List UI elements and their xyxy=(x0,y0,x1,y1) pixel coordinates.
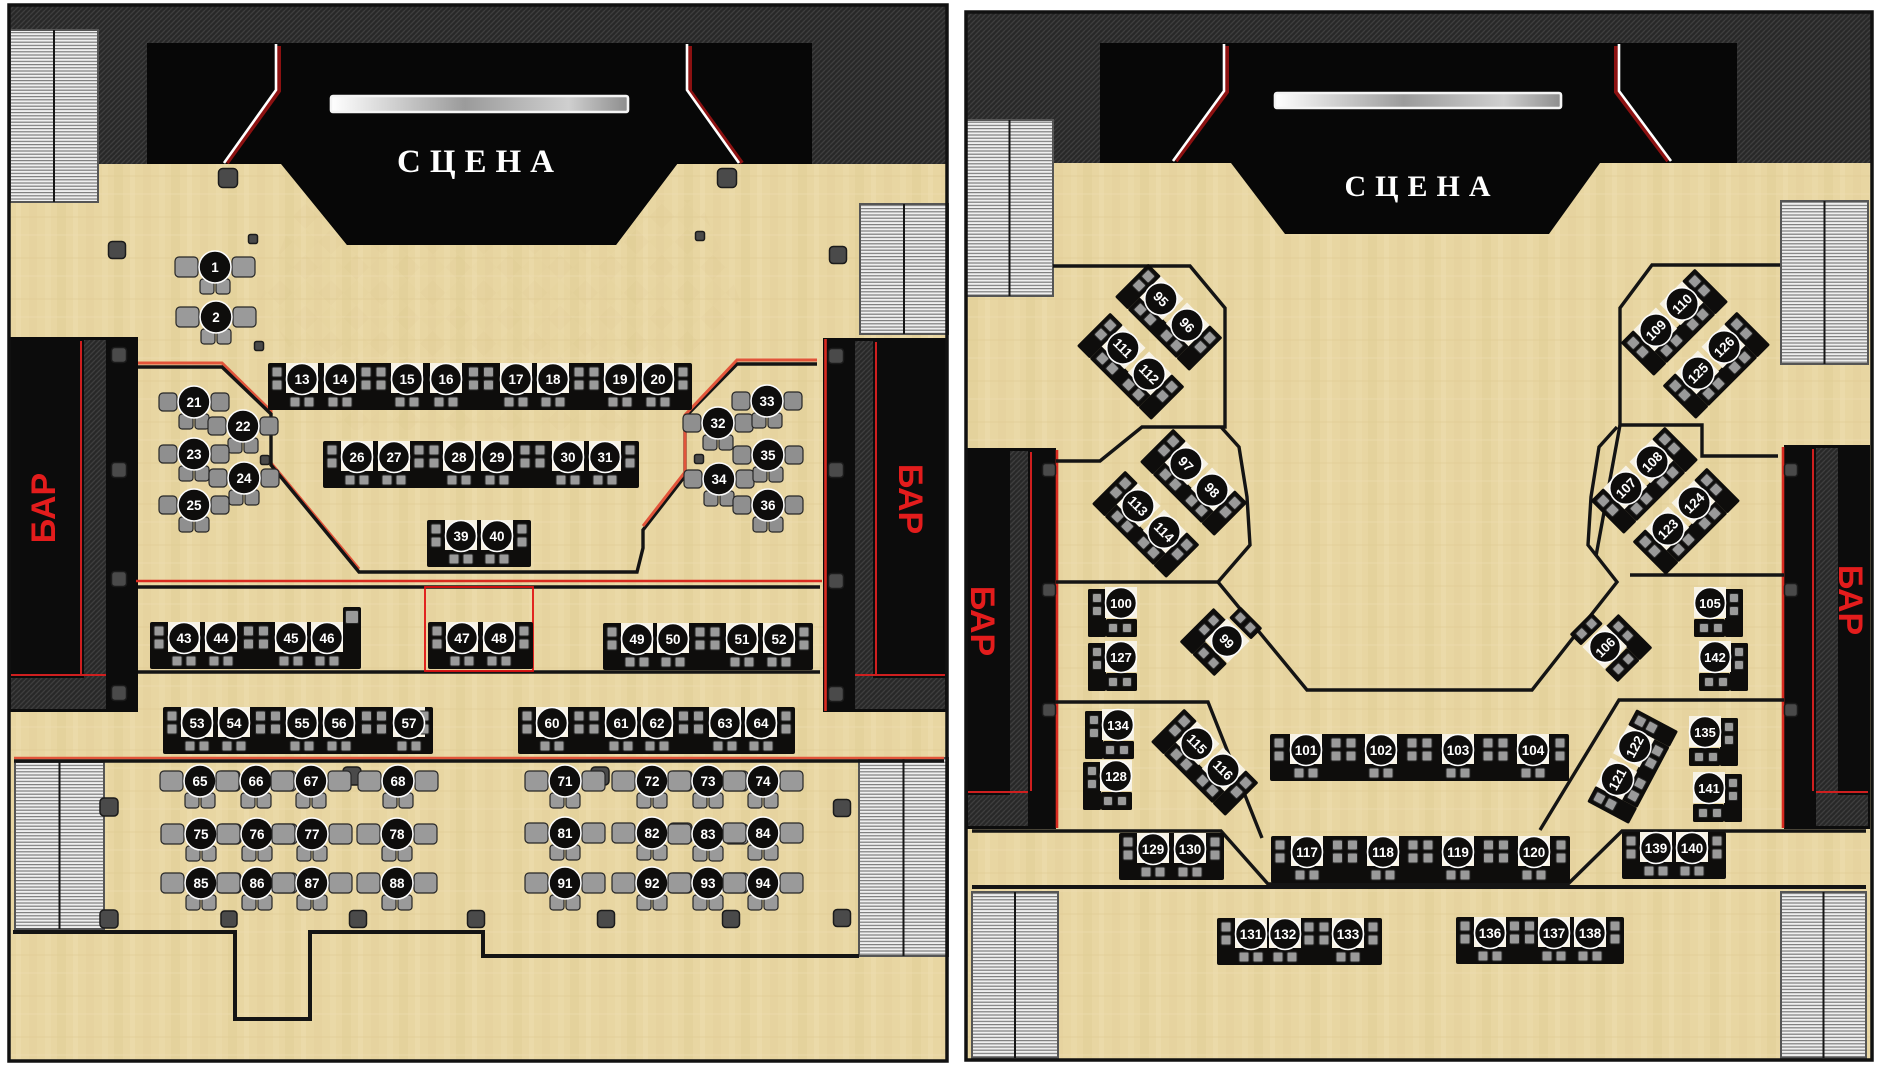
svg-text:36: 36 xyxy=(760,498,776,513)
svg-text:46: 46 xyxy=(319,631,335,646)
svg-text:25: 25 xyxy=(186,498,202,513)
svg-text:50: 50 xyxy=(665,632,680,647)
svg-text:44: 44 xyxy=(213,631,229,646)
svg-text:141: 141 xyxy=(1698,781,1720,796)
svg-text:140: 140 xyxy=(1681,841,1704,856)
svg-text:142: 142 xyxy=(1704,650,1726,665)
svg-text:49: 49 xyxy=(629,632,644,647)
svg-text:34: 34 xyxy=(711,472,727,487)
svg-text:104: 104 xyxy=(1522,743,1545,758)
svg-text:82: 82 xyxy=(644,826,659,841)
svg-text:33: 33 xyxy=(759,394,775,409)
svg-text:68: 68 xyxy=(390,774,406,789)
svg-text:55: 55 xyxy=(294,716,310,731)
svg-text:72: 72 xyxy=(644,774,659,789)
svg-text:1: 1 xyxy=(211,260,219,275)
svg-text:14: 14 xyxy=(332,372,348,387)
svg-text:93: 93 xyxy=(700,876,716,891)
svg-text:117: 117 xyxy=(1296,845,1318,860)
svg-text:63: 63 xyxy=(717,716,733,731)
svg-text:133: 133 xyxy=(1337,927,1360,942)
svg-text:101: 101 xyxy=(1295,743,1318,758)
svg-text:102: 102 xyxy=(1370,743,1393,758)
svg-text:51: 51 xyxy=(734,632,750,647)
svg-text:32: 32 xyxy=(710,416,725,431)
svg-text:30: 30 xyxy=(560,450,575,465)
svg-text:128: 128 xyxy=(1105,769,1127,784)
svg-text:18: 18 xyxy=(545,372,561,387)
svg-text:26: 26 xyxy=(349,450,365,465)
svg-text:92: 92 xyxy=(644,876,659,891)
svg-text:27: 27 xyxy=(386,450,401,465)
svg-text:118: 118 xyxy=(1372,845,1394,860)
svg-text:74: 74 xyxy=(755,774,771,789)
svg-text:139: 139 xyxy=(1645,841,1668,856)
svg-text:52: 52 xyxy=(771,632,786,647)
svg-text:56: 56 xyxy=(331,716,347,731)
svg-text:137: 137 xyxy=(1543,926,1566,941)
svg-text:31: 31 xyxy=(597,450,613,465)
svg-text:120: 120 xyxy=(1523,845,1546,860)
svg-text:19: 19 xyxy=(612,372,627,387)
svg-text:2: 2 xyxy=(212,310,220,325)
svg-text:20: 20 xyxy=(650,372,665,387)
svg-text:15: 15 xyxy=(399,372,415,387)
svg-text:132: 132 xyxy=(1274,927,1297,942)
svg-text:22: 22 xyxy=(235,419,250,434)
svg-text:127: 127 xyxy=(1110,650,1132,665)
svg-text:100: 100 xyxy=(1110,596,1132,611)
svg-text:67: 67 xyxy=(303,774,318,789)
svg-text:47: 47 xyxy=(454,630,470,646)
svg-text:66: 66 xyxy=(248,774,264,789)
svg-text:28: 28 xyxy=(451,450,467,465)
svg-text:40: 40 xyxy=(489,529,504,544)
svg-text:БАР: БАР xyxy=(25,473,63,543)
svg-text:78: 78 xyxy=(389,827,405,842)
svg-text:39: 39 xyxy=(453,529,468,544)
svg-text:71: 71 xyxy=(557,774,573,789)
svg-text:57: 57 xyxy=(401,716,416,731)
svg-text:119: 119 xyxy=(1447,845,1469,860)
svg-text:76: 76 xyxy=(249,827,265,842)
svg-text:81: 81 xyxy=(557,826,573,841)
svg-text:17: 17 xyxy=(508,372,523,387)
svg-text:94: 94 xyxy=(755,876,771,891)
svg-text:73: 73 xyxy=(700,774,716,789)
svg-text:45: 45 xyxy=(283,631,299,646)
svg-text:135: 135 xyxy=(1694,725,1716,740)
svg-text:43: 43 xyxy=(176,631,192,646)
svg-text:85: 85 xyxy=(193,876,209,891)
svg-text:СЦЕНА: СЦЕНА xyxy=(1344,170,1499,203)
svg-text:88: 88 xyxy=(389,876,405,891)
svg-text:105: 105 xyxy=(1699,596,1721,611)
svg-text:91: 91 xyxy=(557,876,573,891)
svg-text:13: 13 xyxy=(294,372,310,387)
svg-text:75: 75 xyxy=(193,827,209,842)
svg-text:84: 84 xyxy=(755,826,771,841)
svg-text:87: 87 xyxy=(304,876,319,891)
svg-text:103: 103 xyxy=(1447,743,1470,758)
svg-text:62: 62 xyxy=(649,716,664,731)
svg-text:35: 35 xyxy=(760,448,776,463)
svg-text:23: 23 xyxy=(186,447,202,462)
svg-text:53: 53 xyxy=(189,716,205,731)
svg-text:29: 29 xyxy=(489,450,504,465)
svg-text:61: 61 xyxy=(613,716,629,731)
svg-text:77: 77 xyxy=(304,827,319,842)
svg-text:48: 48 xyxy=(491,630,507,646)
svg-text:130: 130 xyxy=(1179,842,1202,857)
svg-text:БАР: БАР xyxy=(963,586,1001,656)
svg-text:БАР: БАР xyxy=(891,464,929,534)
svg-text:СЦЕНА: СЦЕНА xyxy=(397,144,563,180)
svg-text:21: 21 xyxy=(186,395,202,410)
svg-text:24: 24 xyxy=(236,471,252,486)
svg-text:54: 54 xyxy=(226,716,242,731)
svg-text:БАР: БАР xyxy=(1831,565,1869,635)
svg-text:64: 64 xyxy=(753,716,769,731)
svg-text:138: 138 xyxy=(1579,926,1602,941)
svg-text:129: 129 xyxy=(1142,842,1165,857)
svg-text:134: 134 xyxy=(1107,718,1129,733)
svg-text:136: 136 xyxy=(1479,926,1502,941)
svg-text:131: 131 xyxy=(1240,927,1263,942)
svg-text:65: 65 xyxy=(192,774,208,789)
svg-text:16: 16 xyxy=(438,372,454,387)
svg-text:83: 83 xyxy=(700,827,716,842)
svg-text:86: 86 xyxy=(249,876,265,891)
svg-text:60: 60 xyxy=(544,716,559,731)
